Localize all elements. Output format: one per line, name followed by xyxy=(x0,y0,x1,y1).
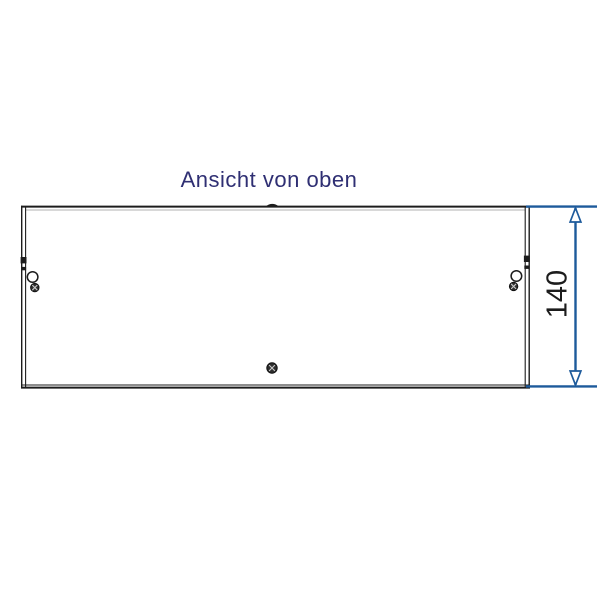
center-screw-icon xyxy=(267,363,277,373)
left-edge-screw-icon xyxy=(31,283,39,291)
left-latch-mark-lower xyxy=(21,267,26,270)
technical-drawing: 140 xyxy=(0,0,600,600)
right-edge-screw-icon xyxy=(509,282,517,290)
cad-viewport: Ansicht von oben xyxy=(0,0,600,600)
left-edge-fastener xyxy=(21,257,39,292)
panel-top-view xyxy=(21,206,530,389)
right-latch-mark-upper xyxy=(524,256,530,262)
dimension-value: 140 xyxy=(542,270,574,318)
dimension-arrow-down-icon xyxy=(570,371,581,385)
right-edge-fastener xyxy=(509,256,529,291)
top-tab-marker-icon xyxy=(266,204,280,207)
left-latch-mark-upper xyxy=(21,257,27,263)
dimension-140: 140 xyxy=(526,207,597,387)
right-clip-ring-icon xyxy=(511,271,522,282)
left-clip-ring-icon xyxy=(27,272,38,283)
dimension-arrow-up-icon xyxy=(570,208,581,222)
right-latch-mark-lower xyxy=(524,266,529,269)
